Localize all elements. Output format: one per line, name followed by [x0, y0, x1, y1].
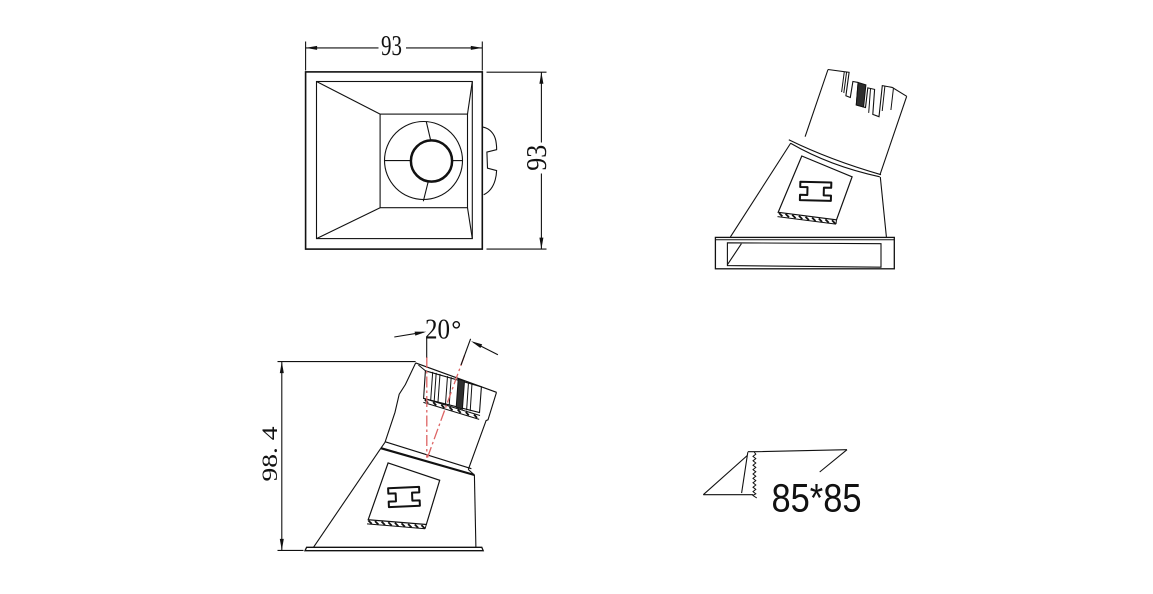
- svg-text:93: 93: [521, 145, 553, 171]
- svg-text:85*85: 85*85: [772, 476, 862, 520]
- svg-text:98. 4: 98. 4: [257, 427, 282, 482]
- svg-text:20: 20: [425, 314, 450, 345]
- svg-text:93: 93: [381, 30, 402, 62]
